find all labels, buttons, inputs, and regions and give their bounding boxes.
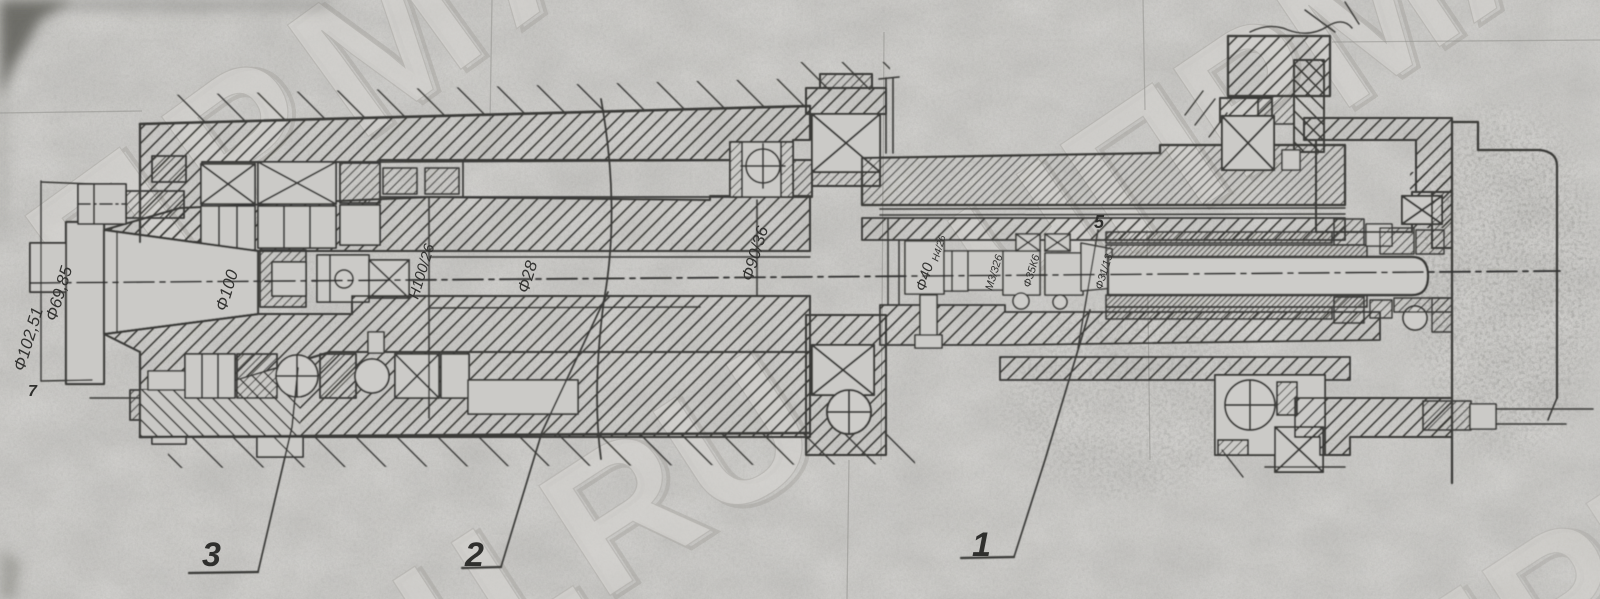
svg-text:7: 7 xyxy=(28,383,38,400)
svg-text:3: 3 xyxy=(202,536,221,574)
svg-text:2: 2 xyxy=(464,536,484,574)
svg-text:1: 1 xyxy=(972,526,991,564)
svg-text:5: 5 xyxy=(1094,212,1105,232)
